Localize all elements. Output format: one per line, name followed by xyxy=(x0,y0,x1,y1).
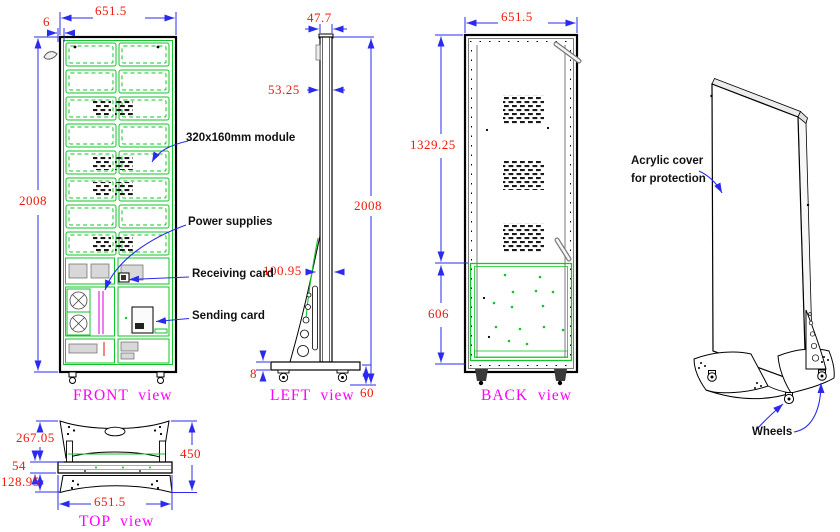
front-view-drawing xyxy=(44,37,176,384)
top-cabinet-depth-dim: 54 xyxy=(12,459,26,472)
front-bezel-dim: 6 xyxy=(43,15,50,28)
left-depth-dim: 53.25 xyxy=(268,83,300,96)
wheels-label: Wheels xyxy=(752,426,792,440)
drawing-canvas xyxy=(0,0,840,532)
module-label: 320x160mm module xyxy=(186,132,295,146)
sending-card-label: Sending card xyxy=(192,310,265,324)
receiving-card-part xyxy=(119,273,129,282)
left-height-dim: 2008 xyxy=(354,199,382,212)
top-view-drawing xyxy=(58,421,172,493)
power-supplies-label: Power supplies xyxy=(188,216,272,230)
front-width-dim: 651.5 xyxy=(95,4,127,17)
acrylic-cover-label-line2: for protection xyxy=(631,173,706,187)
left-thickness-dim: 47.7 xyxy=(307,11,332,24)
acrylic-cover-label-line1: Acrylic cover xyxy=(631,155,703,169)
back-door-dim: 606 xyxy=(428,307,449,320)
top-front-depth-dim: 267.05 xyxy=(16,431,55,444)
perspective-view-drawing xyxy=(694,79,834,404)
top-rear-depth-dim: 128.95 xyxy=(1,475,40,488)
top-total-depth-dim: 450 xyxy=(180,447,201,460)
left-wheel-dim: 60 xyxy=(360,386,374,399)
back-view-title: BACK view xyxy=(481,388,572,404)
receiving-card-label: Receiving card xyxy=(192,268,274,282)
left-base-dim: 8 xyxy=(250,367,257,380)
back-view-drawing xyxy=(465,35,579,385)
top-width-dim: 651.5 xyxy=(94,495,126,508)
top-view-title: TOP view xyxy=(79,514,154,530)
left-view-title: LEFT view xyxy=(270,388,355,404)
left-view-wheels xyxy=(278,370,348,382)
front-view-title: FRONT view xyxy=(73,388,172,404)
back-upper-dim: 1329.25 xyxy=(410,138,456,151)
back-width-dim: 651.5 xyxy=(501,10,533,23)
cad-drawing-page: 651.5 6 2008 47.7 53.25 2008 100.95 8 60… xyxy=(0,0,840,532)
front-height-dim: 2008 xyxy=(19,194,47,207)
